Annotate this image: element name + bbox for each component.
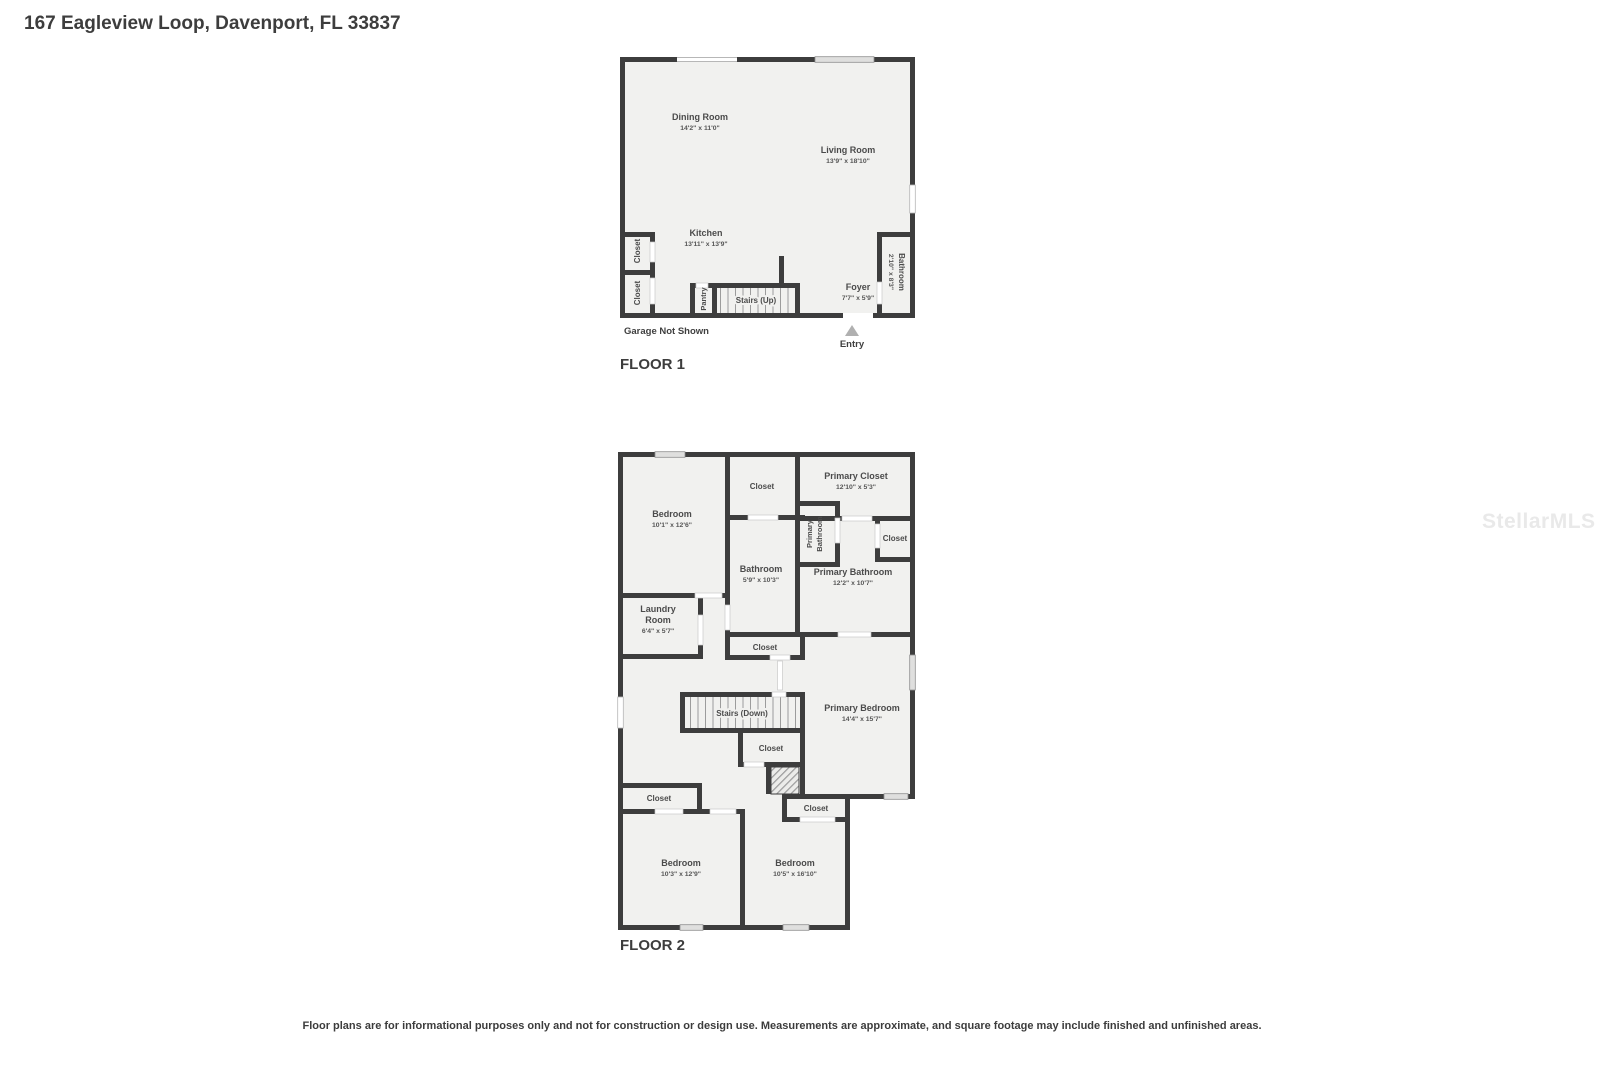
room-dims-bedroom-left: 10'3" x 12'9" <box>661 871 701 878</box>
window <box>655 452 685 458</box>
room-label-laundry-1: Laundry <box>640 604 676 614</box>
room-label-living: Living Room <box>821 145 876 155</box>
room-label-pantry: Pantry <box>699 287 708 311</box>
garage-note: Garage Not Shown <box>624 326 709 337</box>
page-title: 167 Eagleview Loop, Davenport, FL 33837 <box>24 13 401 35</box>
room-dims-laundry: 6'4" x 5'7" <box>642 628 674 635</box>
room-label-dining: Dining Room <box>672 112 728 122</box>
room-label-primary-bathroom: Primary Bathroom <box>814 567 893 577</box>
room-label-closet-stairs: Closet <box>759 744 784 753</box>
floor1-title: FLOOR 1 <box>620 356 685 373</box>
entry-label: Entry <box>840 339 865 350</box>
floor2-plan: Bedroom 10'1" x 12'6" Closet Primary Clo… <box>560 440 960 960</box>
room-label-closet-bottom: Closet <box>804 804 829 813</box>
room-label-bedroom-mid: Bedroom <box>775 858 815 868</box>
mls-watermark: StellarMLS <box>1482 510 1596 534</box>
room-label-closet-upper: Closet <box>633 238 642 263</box>
room-label-kitchen: Kitchen <box>689 228 722 238</box>
floor1-room-fill <box>622 59 913 316</box>
room-label-closet-hall: Closet <box>753 643 778 652</box>
entry-arrow-icon <box>845 325 859 336</box>
room-dims-dining: 14'2" x 11'0" <box>680 125 720 132</box>
room-label-bathroom: Bathroom <box>897 253 906 291</box>
chase-hatch <box>771 767 799 794</box>
room-dims-bedroom-top: 10'1" x 12'6" <box>652 522 692 529</box>
room-label-primary-bedroom: Primary Bedroom <box>824 703 900 713</box>
room-dims-living: 13'9" x 18'10" <box>826 158 870 165</box>
room-label-bathroom2: Bathroom <box>740 564 783 574</box>
room-label-primary-bathroom-wc-1: Primary <box>805 519 814 548</box>
window <box>618 697 624 728</box>
room-dims-primary-bedroom: 14'4" x 15'7" <box>842 716 882 723</box>
room-label-closet-lower: Closet <box>633 280 642 305</box>
room-dims-bathroom: 2'10" x 8'3" <box>887 254 894 290</box>
room-dims-primary-bathroom: 12'2" x 10'7" <box>833 580 873 587</box>
window <box>884 794 908 800</box>
room-dims-bedroom-mid: 10'5" x 16'10" <box>773 871 817 878</box>
room-label-closet-top: Closet <box>750 482 775 491</box>
room-dims-primary-closet: 12'10" x 5'3" <box>836 484 876 491</box>
floorplan-page: 167 Eagleview Loop, Davenport, FL 33837 <box>0 0 1600 1066</box>
room-label-bedroom-left: Bedroom <box>661 858 701 868</box>
room-label-primary-bathroom-wc-2: Bathroom <box>815 516 824 552</box>
window <box>910 185 916 213</box>
window <box>677 57 737 62</box>
room-label-laundry-2: Room <box>645 615 671 625</box>
door-leaf <box>778 661 783 690</box>
room-dims-kitchen: 13'11" x 13'9" <box>684 241 727 248</box>
room-label-foyer: Foyer <box>846 282 871 292</box>
room-label-bedroom-top: Bedroom <box>652 509 692 519</box>
floor2-title: FLOOR 2 <box>620 937 685 954</box>
room-label-closet-right: Closet <box>883 534 908 543</box>
window <box>783 925 809 931</box>
room-label-primary-closet: Primary Closet <box>824 471 888 481</box>
room-label-closet-left: Closet <box>647 794 672 803</box>
disclaimer-text: Floor plans are for informational purpos… <box>0 1020 1564 1032</box>
room-dims-bathroom2: 5'9" x 10'3" <box>743 577 779 584</box>
entry-opening <box>843 313 873 318</box>
room-label-stairs-up: Stairs (Up) <box>736 296 777 305</box>
window <box>910 655 916 690</box>
floor1-plan: Dining Room 14'2" x 11'0" Living Room 13… <box>560 40 960 380</box>
window <box>815 57 874 63</box>
room-dims-foyer: 7'7" x 5'9" <box>842 295 874 302</box>
window <box>680 925 703 931</box>
room-label-stairs-down: Stairs (Down) <box>716 709 768 718</box>
